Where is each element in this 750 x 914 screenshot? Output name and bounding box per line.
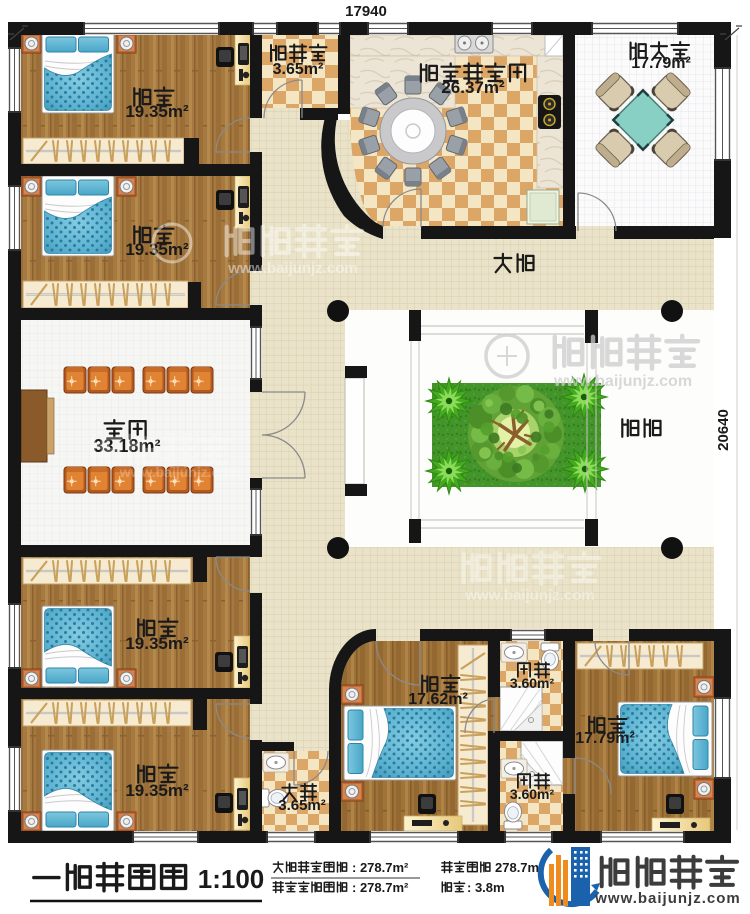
svg-text:278.7m²: 278.7m² <box>495 860 544 875</box>
svg-text:3.65m²: 3.65m² <box>273 61 324 78</box>
svg-text:19.35m²: 19.35m² <box>125 634 189 653</box>
svg-text:17.79m²: 17.79m² <box>575 730 635 747</box>
svg-text:19.35m²: 19.35m² <box>125 102 189 121</box>
svg-text:: 278.7m²: : 278.7m² <box>352 880 409 895</box>
svg-text:17940: 17940 <box>345 3 387 20</box>
svg-text:www.baijunjz.com: www.baijunjz.com <box>227 260 357 277</box>
svg-text:www.baijunjz.com: www.baijunjz.com <box>464 587 594 604</box>
svg-text:3.60m²: 3.60m² <box>510 786 555 802</box>
svg-text:: 3.8m: : 3.8m <box>467 880 505 895</box>
svg-text:26.37m²: 26.37m² <box>441 78 505 97</box>
svg-text:www.baijunjz.com: www.baijunjz.com <box>119 464 241 480</box>
svg-text:20640: 20640 <box>715 409 732 451</box>
svg-text:17.62m²: 17.62m² <box>408 691 468 708</box>
svg-text:19.35m²: 19.35m² <box>125 781 189 800</box>
svg-text:3.60m²: 3.60m² <box>510 675 555 691</box>
svg-text:www.baijunjz.com: www.baijunjz.com <box>553 373 692 390</box>
svg-text:17.79m²: 17.79m² <box>631 55 691 72</box>
svg-text:: 278.7m²: : 278.7m² <box>352 860 409 875</box>
svg-text:3.65m²: 3.65m² <box>278 797 326 814</box>
svg-text:1:100: 1:100 <box>198 864 265 894</box>
svg-text:www.baijunjz.com: www.baijunjz.com <box>594 890 740 907</box>
